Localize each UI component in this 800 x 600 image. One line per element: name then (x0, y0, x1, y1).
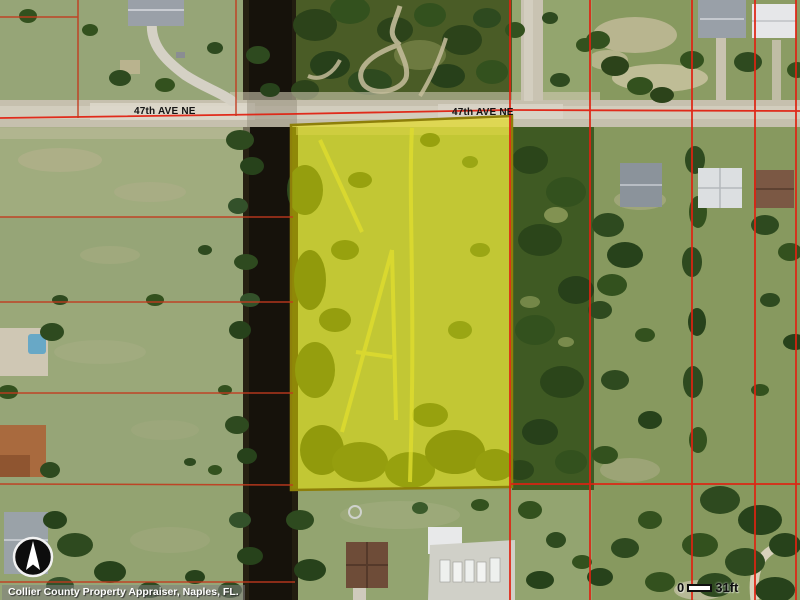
street-label-47th-ave-ne-east: 47th AVE NE (452, 107, 514, 118)
highlighted-parcel[interactable] (291, 116, 512, 490)
scale-bar-segment (687, 584, 712, 592)
north-arrow-glyph (12, 536, 54, 578)
north-arrow-icon (12, 536, 54, 578)
attribution: Collier County Property Appraiser, Naple… (2, 585, 245, 600)
scale-end-label: 31ft (715, 580, 738, 595)
scale-start-label: 0 (677, 580, 684, 595)
woods-east-parcel (506, 127, 594, 490)
street-label-47th-ave-ne-west: 47th AVE NE (134, 106, 196, 117)
parked-vehicles (440, 558, 500, 582)
aerial-imagery (0, 0, 800, 600)
scale-bar: 0 31ft (677, 580, 738, 595)
aerial-parcel-map[interactable]: 47th AVE NE 47th AVE NE Collier County P… (0, 0, 800, 600)
